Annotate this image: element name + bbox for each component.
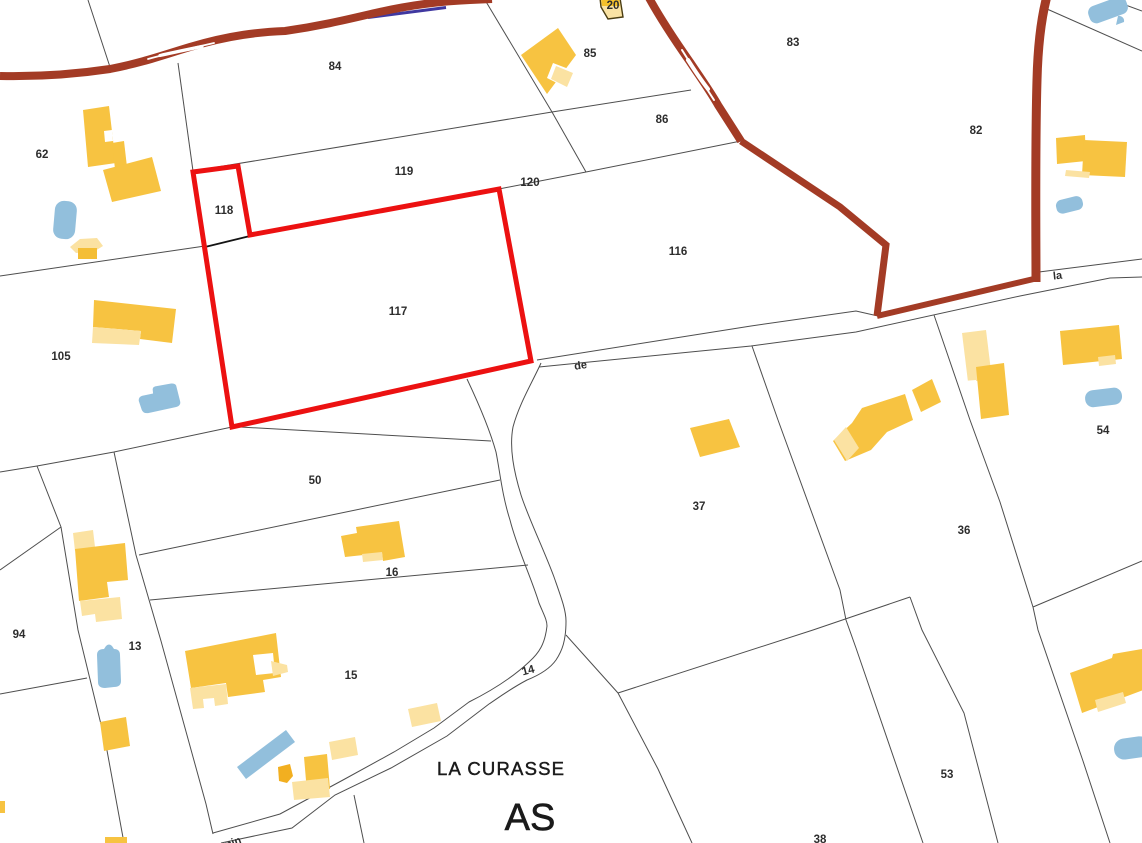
svg-text:116: 116 <box>669 246 688 258</box>
svg-text:36: 36 <box>958 525 971 537</box>
svg-text:85: 85 <box>584 48 597 60</box>
svg-text:83: 83 <box>787 37 800 49</box>
svg-text:20: 20 <box>607 0 620 12</box>
svg-text:118: 118 <box>215 205 234 217</box>
svg-text:LA CURASSE: LA CURASSE <box>437 758 565 779</box>
svg-text:AS: AS <box>505 797 556 839</box>
svg-text:16: 16 <box>386 567 399 579</box>
svg-text:15: 15 <box>345 670 358 682</box>
svg-text:119: 119 <box>395 166 414 178</box>
svg-text:82: 82 <box>970 125 983 137</box>
svg-text:54: 54 <box>1097 425 1110 437</box>
svg-text:120: 120 <box>520 177 539 189</box>
svg-text:53: 53 <box>941 769 954 781</box>
svg-text:13: 13 <box>129 641 142 653</box>
svg-text:37: 37 <box>693 501 706 513</box>
svg-text:86: 86 <box>656 114 669 126</box>
svg-text:de: de <box>573 359 588 373</box>
svg-text:117: 117 <box>389 306 408 318</box>
svg-text:62: 62 <box>36 149 49 161</box>
svg-text:38: 38 <box>814 834 827 843</box>
svg-text:94: 94 <box>13 629 26 641</box>
svg-text:105: 105 <box>51 351 71 363</box>
svg-text:50: 50 <box>309 475 322 487</box>
svg-text:84: 84 <box>329 61 342 73</box>
